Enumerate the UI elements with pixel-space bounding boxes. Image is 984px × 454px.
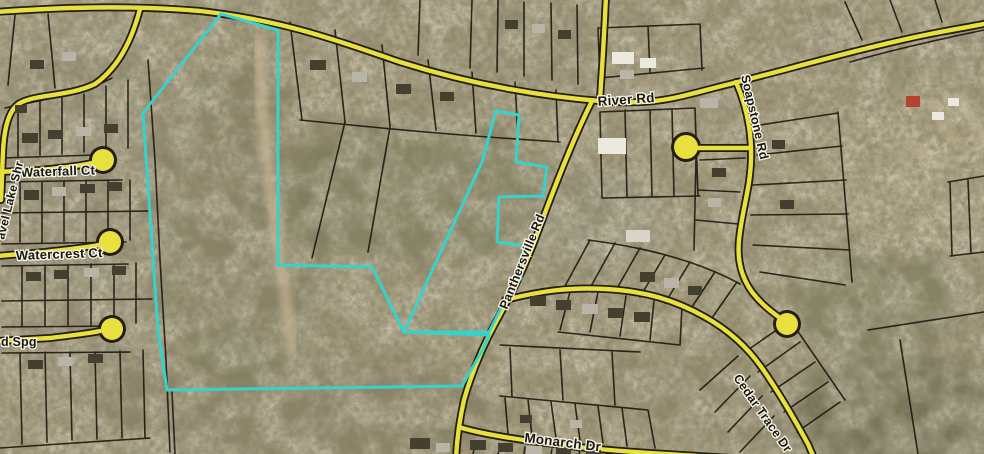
road-label-waterfall-ct: Waterfall Ct — [21, 162, 96, 180]
road-label-d-spg: d Spg — [1, 335, 37, 349]
red-roof-building — [906, 96, 920, 107]
culdesac-spg — [101, 318, 123, 340]
road-label-watercrest-ct: Watercrest Ct — [16, 245, 104, 263]
aerial-map: River Rd Soapstone Rd Panthersville Rd W… — [0, 0, 984, 454]
terrain-base — [0, 0, 984, 454]
culdesac-waterfall — [92, 149, 114, 171]
map-canvas[interactable]: River Rd Soapstone Rd Panthersville Rd W… — [0, 0, 984, 454]
culdesac-soapstone-end — [776, 313, 798, 335]
culdesac-soapstone-spur — [674, 135, 698, 159]
white-building — [598, 138, 626, 154]
